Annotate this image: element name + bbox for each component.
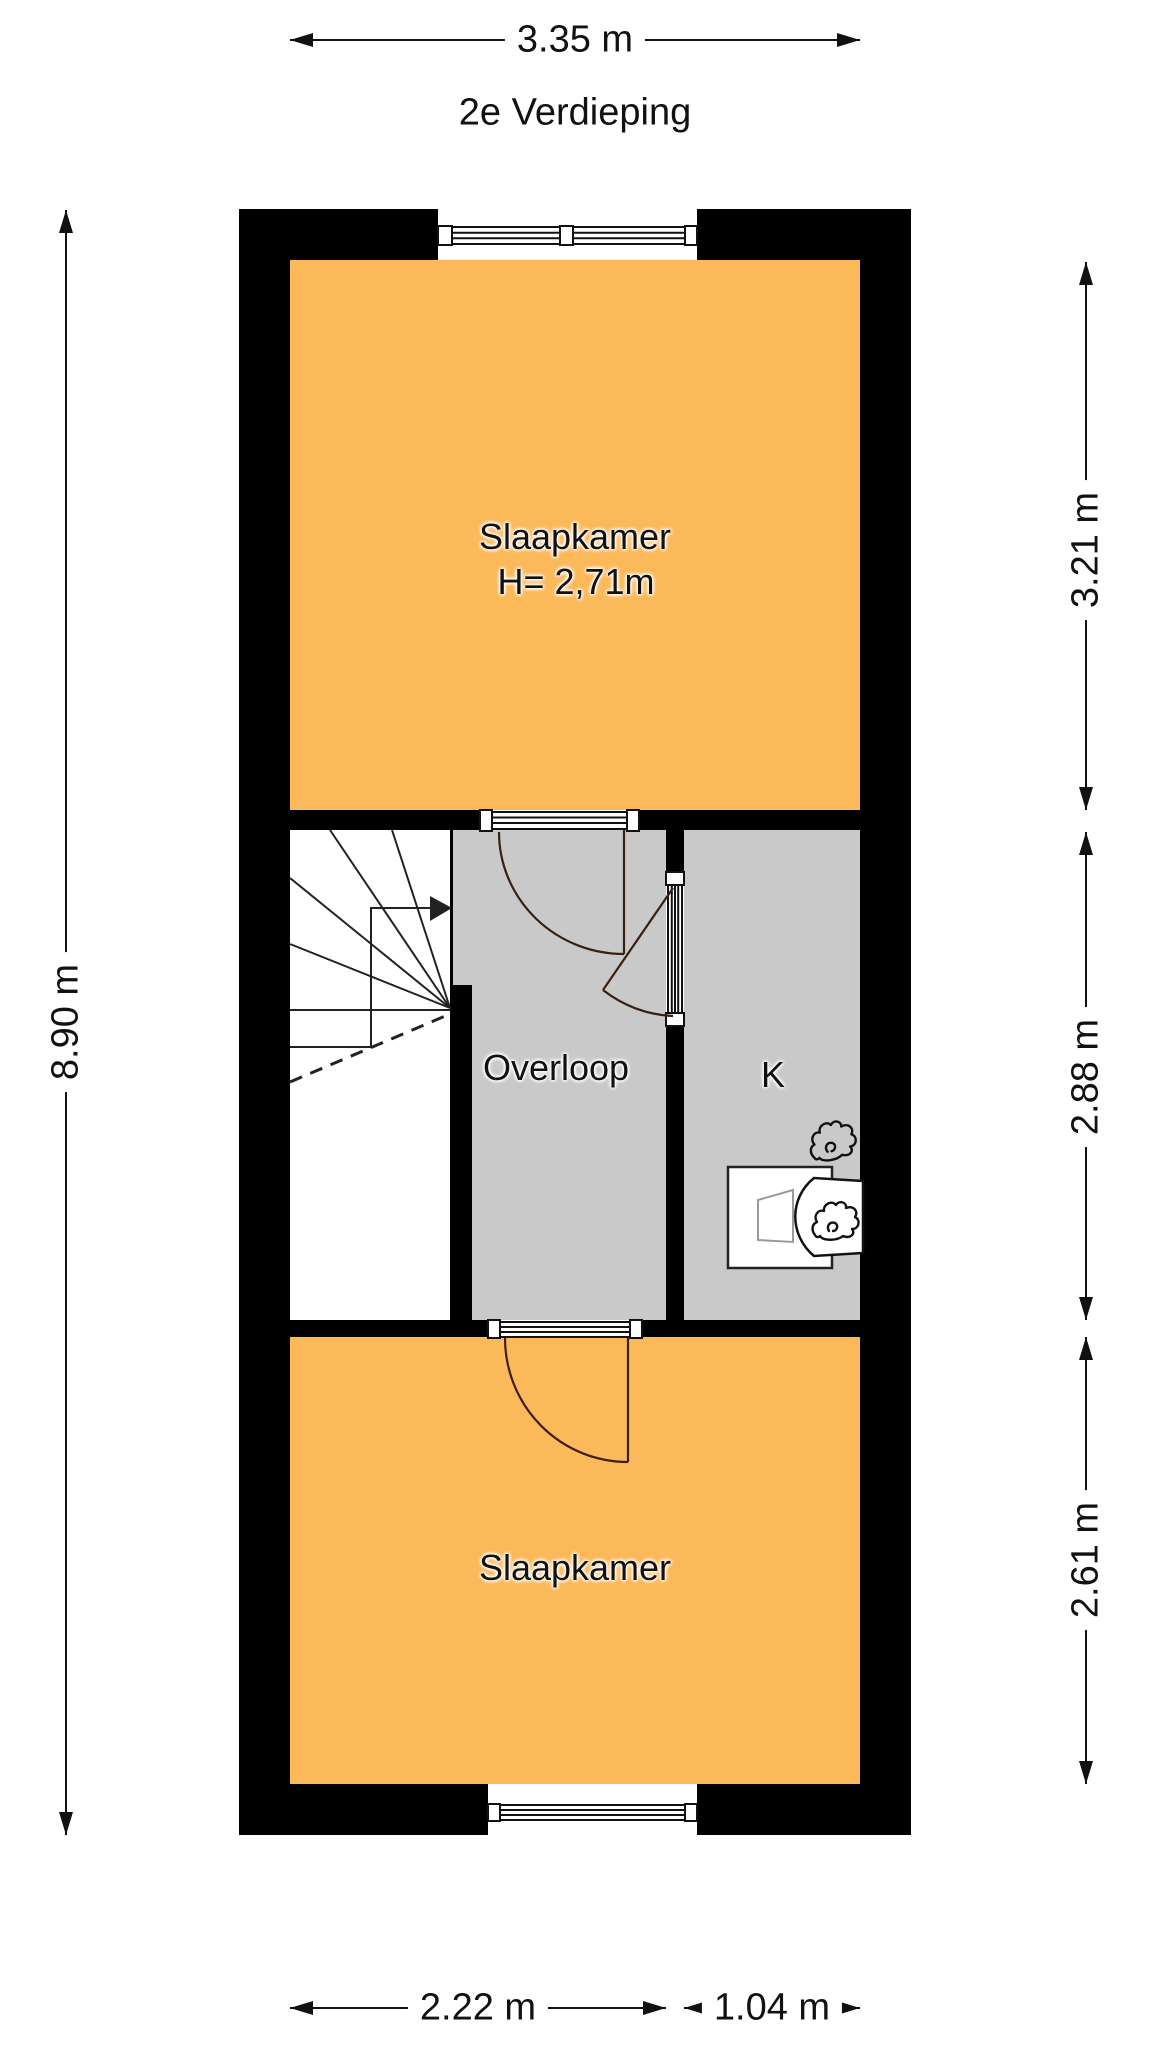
wall-top-left: [239, 209, 438, 260]
room-label-closet: K: [761, 1054, 785, 1096]
dim-right-top-label: 3.21 m: [1065, 480, 1108, 620]
wall-a-right: [639, 810, 860, 830]
door-post: [666, 872, 684, 885]
window-post: [438, 226, 452, 245]
dim-bottom-left-label: 2.22 m: [408, 1987, 548, 2030]
wall-left: [239, 209, 290, 1835]
wall-landing-closet-top: [666, 830, 684, 872]
wall-bottom-left: [239, 1784, 488, 1835]
stairs-walkline: [290, 908, 432, 1047]
bottom-window: [488, 1804, 697, 1821]
room-label-landing: Overloop: [483, 1047, 629, 1089]
stair-tread: [392, 830, 450, 1008]
wall-b-right: [642, 1320, 860, 1337]
window-mullion: [560, 226, 573, 245]
door-post: [480, 810, 492, 831]
stairs: [290, 830, 452, 1082]
door-post: [630, 1320, 642, 1338]
room-label-bedroom-bottom: Slaapkamer: [479, 1547, 671, 1589]
stairs-up-arrow-icon: [430, 896, 452, 921]
window-post: [685, 226, 697, 245]
dim-right-bottom-label: 2.61 m: [1065, 1490, 1108, 1630]
window-post: [685, 1804, 697, 1821]
door-post: [627, 810, 639, 831]
wall-a-left: [290, 810, 480, 830]
floorplan-canvas: 2e Verdieping 3.35 m 8.90 m 3.21 m 2.88 …: [0, 0, 1152, 2048]
wall-top-right: [697, 209, 911, 260]
door-post: [488, 1320, 500, 1338]
dim-top-label: 3.35 m: [505, 19, 645, 62]
wall-bottom-right: [697, 1784, 911, 1835]
wall-landing-closet-bottom: [666, 1026, 684, 1320]
stairs-landing-divider-line: [450, 830, 453, 990]
floorplan-drawing: [0, 0, 1152, 2048]
boiler-body: [795, 1178, 863, 1256]
wall-b-left: [290, 1320, 488, 1337]
window-post: [488, 1804, 500, 1821]
dim-right-middle-label: 2.88 m: [1065, 1007, 1108, 1147]
dim-left-label: 8.90 m: [45, 952, 88, 1092]
room-label-bedroom-top: Slaapkamer: [479, 516, 671, 558]
page-title: 2e Verdieping: [459, 92, 691, 135]
top-window: [438, 226, 697, 245]
room-height-label: H= 2,71m: [497, 561, 654, 603]
dim-bottom-right-label: 1.04 m: [702, 1987, 842, 2030]
wall-stairs-landing: [450, 985, 472, 1320]
wall-right: [860, 209, 911, 1835]
